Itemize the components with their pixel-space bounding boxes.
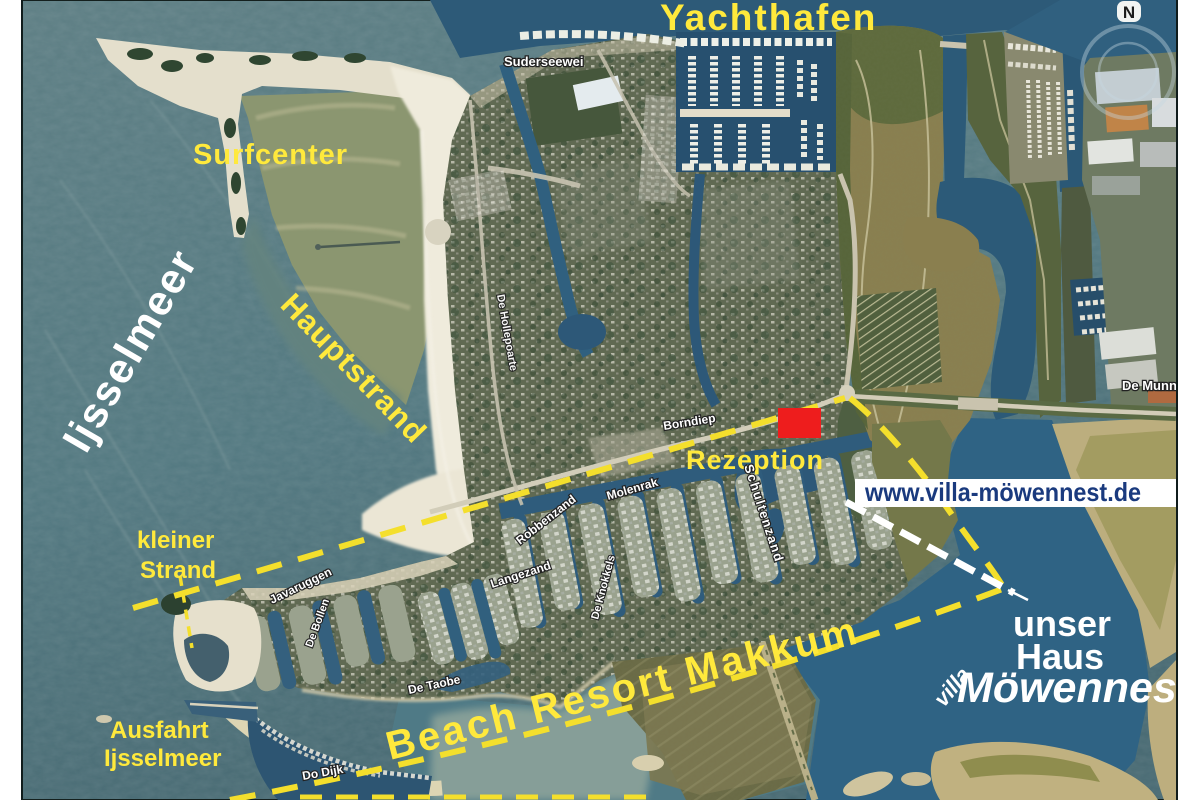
svg-text:Möwennest: Möwennest — [957, 664, 1193, 712]
svg-text:N: N — [1123, 3, 1135, 22]
svg-text:Suderseewei: Suderseewei — [504, 54, 584, 69]
svg-text:kleiner: kleiner — [137, 527, 214, 554]
svg-text:Yachthafen: Yachthafen — [660, 0, 877, 38]
svg-text:Strand: Strand — [140, 557, 216, 584]
svg-text:Ijsselmeer: Ijsselmeer — [104, 745, 221, 772]
svg-text:De Munni: De Munni — [1122, 378, 1181, 393]
svg-text:Surfcenter: Surfcenter — [193, 139, 348, 171]
svg-text:Ausfahrt: Ausfahrt — [110, 717, 209, 744]
svg-text:www.villa-möwennest.de: www.villa-möwennest.de — [864, 477, 1141, 507]
